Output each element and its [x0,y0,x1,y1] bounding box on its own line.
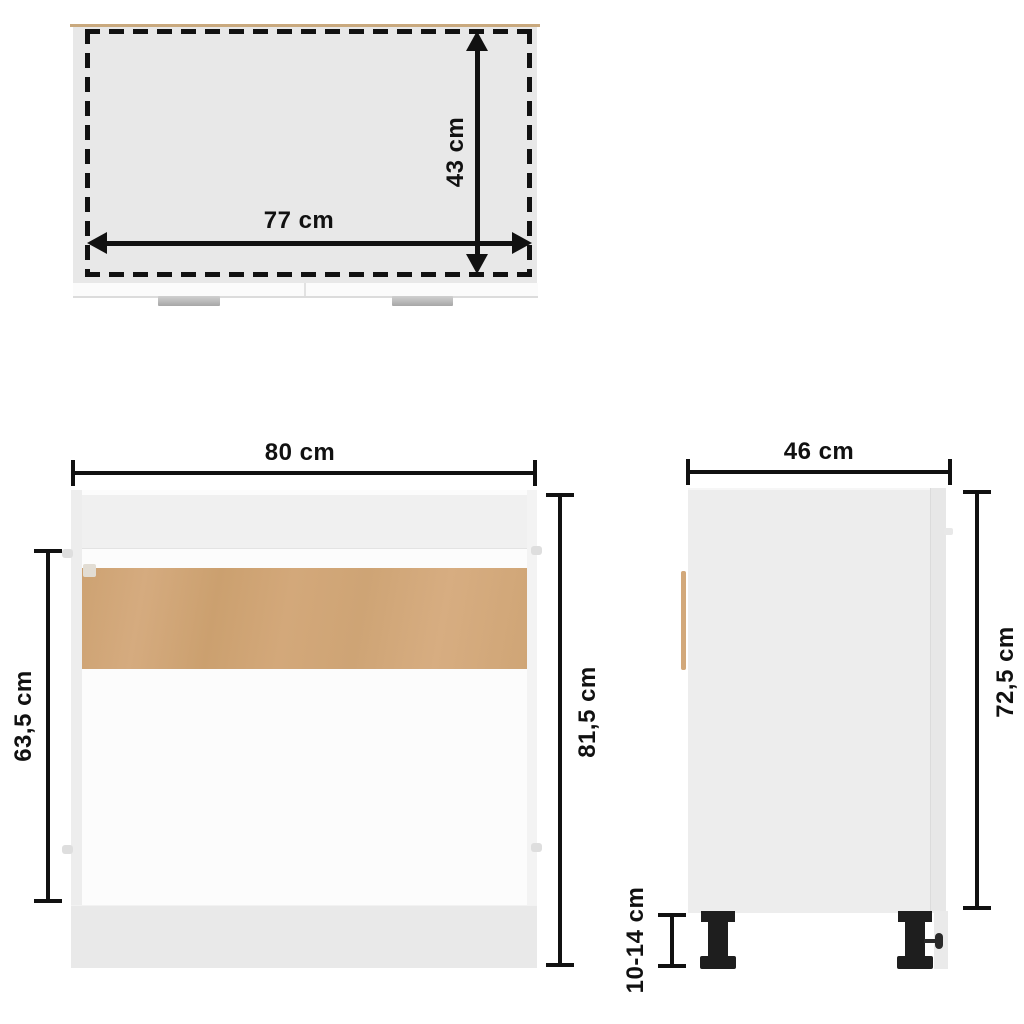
hinge-pin-right-top [531,546,542,555]
hinge-bracket [83,564,96,577]
side-leg-height-dimension [670,913,674,968]
side-hinge-pin [944,528,953,535]
width-label-77: 77 cm [264,207,335,235]
side-depth-dimension [686,470,952,474]
hinge-pin-left-top [62,549,73,558]
front-plinth [71,905,537,968]
front-total-height-label: 81,5 cm [574,666,602,758]
side-body-height-dimension [975,490,979,910]
leg-front-stem [708,922,728,958]
door-handle-right [392,296,453,306]
front-width-label: 80 cm [265,439,336,467]
front-inner-height-label: 63,5 cm [10,670,38,762]
leg-adjuster-knob [935,933,943,949]
side-door-handle-profile [681,571,686,670]
front-total-height-dimension [558,493,562,967]
front-top-rail [82,495,527,549]
hinge-pin-left-bottom [62,845,73,854]
top-view: 43 cm 77 cm [0,0,620,320]
door-handle-left [158,296,220,306]
leg-rear-foot [897,956,933,969]
top-outline-dash-bottom [85,272,532,277]
front-cabinet-body [71,490,537,967]
leg-rear-cap [898,911,932,922]
side-depth-label: 46 cm [784,438,855,466]
leg-front-cap [701,911,735,922]
product-dimension-diagram: 43 cm 77 cm 80 cm 81,5 cm 63,5 cm [0,0,1024,1024]
leg-rear-stem [905,922,925,958]
front-width-dimension [71,471,537,475]
front-back-board [82,568,527,669]
leg-front-foot [700,956,736,969]
front-inner-height-dimension [46,549,50,903]
side-leg-height-label: 10-14 cm [622,887,650,994]
front-right-side-panel [527,490,537,967]
side-view: 46 cm 72,5 cm 10-14 cm [620,430,1024,1024]
depth-label-43: 43 cm [442,117,470,188]
front-view: 80 cm 81,5 cm 63,5 cm [0,430,620,1024]
side-body-height-label: 72,5 cm [992,626,1020,718]
top-view-door-seam [304,283,306,296]
width-arrow-77 [87,232,532,254]
front-left-side-panel [71,490,82,967]
top-outline-dash-top [85,29,532,34]
hinge-pin-right-bottom [531,843,542,852]
side-back-panel-edge [930,488,946,911]
side-cabinet-body [688,488,945,913]
